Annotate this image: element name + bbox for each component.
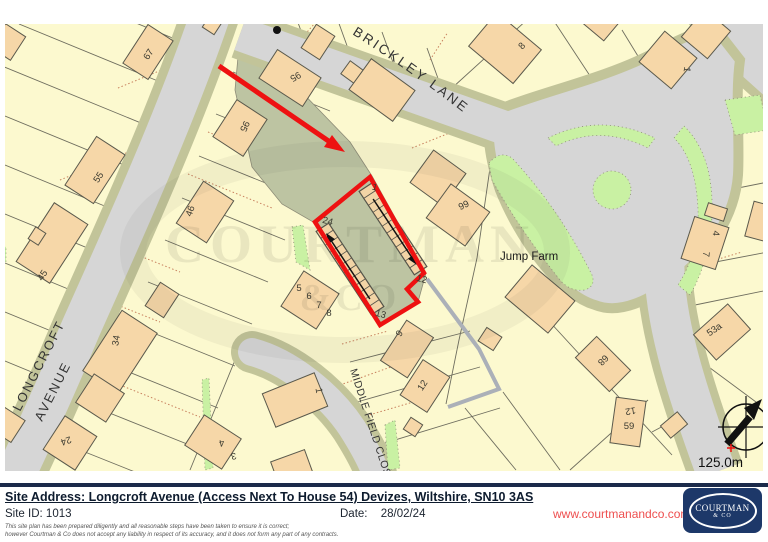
- site-id-label: Site ID:: [5, 508, 43, 520]
- house-number-label: 12: [624, 404, 636, 417]
- map-canvas: COURTMAN &CO BRICKLEY LANE LONGCROFT AVE…: [0, 0, 768, 483]
- disclaimer-line-1: This site plan has been prepared diligen…: [5, 523, 338, 531]
- date-value: 28/02/24: [381, 508, 426, 520]
- logo-text-courtman: COURTMAN: [695, 503, 749, 513]
- house-number-label: 7: [316, 300, 321, 311]
- site-id-row: Site ID: 1013: [5, 508, 72, 520]
- survey-point-dot-icon: [273, 26, 281, 34]
- house-number-label: 7: [700, 251, 711, 257]
- place-label-jump-farm: Jump Farm: [500, 251, 558, 263]
- date-label: Date:: [340, 508, 368, 520]
- site-id-value: 1013: [46, 508, 72, 520]
- house-number-label: 5: [296, 283, 301, 294]
- site-plan-map: COURTMAN &CO BRICKLEY LANE LONGCROFT AVE…: [0, 0, 768, 483]
- house-number-label: 34: [110, 334, 123, 346]
- logo-oval: COURTMAN & CO: [689, 493, 757, 529]
- scale-label: 125.0m: [698, 455, 743, 470]
- disclaimer-line-2: however Courtman & Co does not accept an…: [5, 531, 338, 539]
- footer-divider: [0, 483, 768, 487]
- site-address: Site Address: Longcroft Avenue (Access N…: [5, 490, 533, 504]
- logo-text-co: & CO: [713, 513, 732, 519]
- house-number-label: 6: [306, 291, 311, 302]
- house-number-label: 8: [326, 308, 331, 319]
- house-number-label: 59: [624, 421, 635, 432]
- website-link[interactable]: www.courtmanandco.com: [553, 507, 690, 521]
- date-row: Date: 28/02/24: [340, 508, 425, 520]
- disclaimer-text: This site plan has been prepared diligen…: [5, 523, 338, 539]
- site-plan-page: { "map": { "roads": { "brickley": "BRICK…: [0, 0, 768, 542]
- house-number-label: 4: [710, 230, 721, 236]
- footer: Site Address: Longcroft Avenue (Access N…: [0, 483, 768, 542]
- courtman-logo: COURTMAN & CO: [683, 488, 762, 533]
